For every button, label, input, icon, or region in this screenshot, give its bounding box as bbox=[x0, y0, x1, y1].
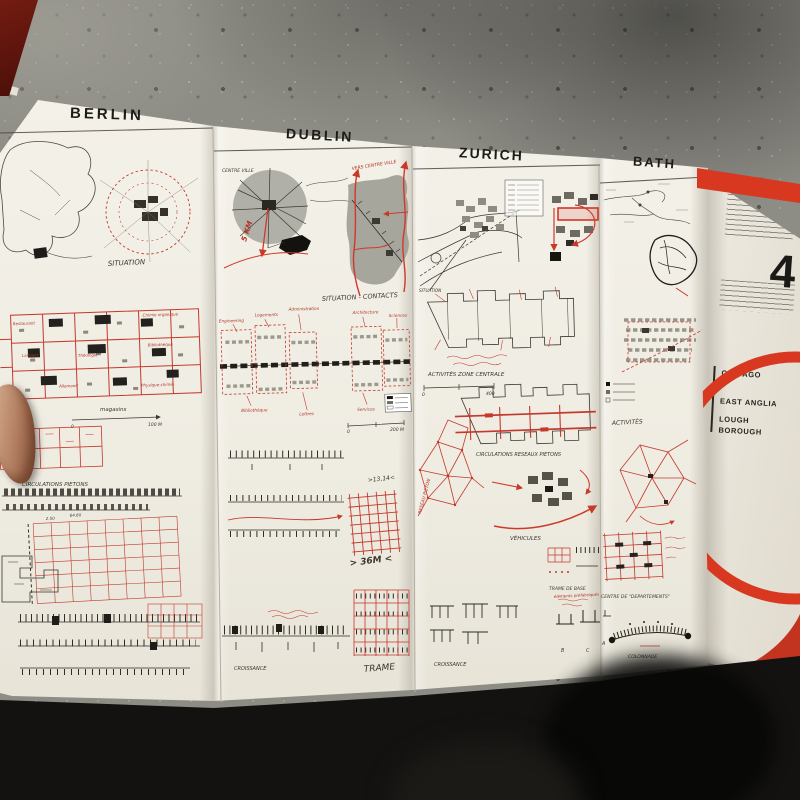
red-top-band bbox=[697, 168, 800, 203]
dublin-masterplan: Engineering Logements Administration Arc… bbox=[218, 304, 411, 419]
bath-city-blob-map bbox=[650, 235, 697, 296]
zurich-circulations-caption: CIRCULATIONS RESEAUX PIETONS bbox=[476, 452, 562, 458]
berlin-scale-bar: 0 100 M bbox=[71, 417, 162, 430]
berlin-campus-grid-plan: Restaurant Chimie organique Langues Théo… bbox=[0, 309, 201, 400]
dublin-label-logements: Logements bbox=[255, 312, 279, 318]
zurich-letter-c: C bbox=[586, 648, 590, 654]
zurich-map-legend bbox=[505, 180, 543, 216]
berlin-label-physique: Physique-chimie bbox=[141, 382, 174, 388]
zurich-prefab-caption: éléments préfabriqués bbox=[554, 592, 599, 599]
berlin-dim-a: 2.50 bbox=[46, 516, 56, 521]
berlin-black-plan-rows bbox=[2, 492, 182, 510]
berlin-growth-section-rows bbox=[18, 604, 202, 672]
zurich-base-grid-diagrams bbox=[548, 548, 600, 573]
bath-legend bbox=[606, 382, 635, 402]
zurich-meander-plan bbox=[454, 382, 597, 447]
dublin-city-circle-map bbox=[232, 168, 352, 255]
panel-title-berlin: BERLIN bbox=[70, 105, 144, 125]
dublin-label-bibliotheque: Bibliothèque bbox=[241, 407, 268, 413]
berlin-dim-b: 64.60 bbox=[70, 512, 82, 518]
berlin-situation-caption: SITUATION bbox=[108, 258, 146, 268]
zurich-vehicules-caption: VÉHICULES bbox=[510, 534, 541, 542]
berlin-label-langues: Langues bbox=[22, 352, 39, 358]
dublin-vers-centre-label: VERS CENTRE VILLE bbox=[351, 159, 397, 172]
dublin-grid-top-label: >13,14< bbox=[367, 474, 395, 484]
berlin-city-map bbox=[0, 142, 95, 259]
zurich-growth-sections bbox=[430, 604, 518, 644]
dublin-section-comb-1 bbox=[228, 454, 344, 470]
right-page-red-graphics bbox=[674, 168, 800, 692]
zurich-trame-caption: TRAME DE BASE bbox=[549, 586, 586, 592]
berlin-circulations-caption: CIRCULATIONS PIETONS bbox=[22, 482, 88, 488]
bath-situation-sketch bbox=[604, 184, 690, 224]
dublin-trame-caption: TRAME bbox=[363, 662, 395, 675]
berlin-label-restaurant: Restaurant bbox=[13, 320, 36, 326]
dublin-label-engineering: Engineering bbox=[219, 318, 245, 324]
bath-panel-diagrams: ACTIVITÉS bbox=[601, 184, 702, 660]
panel-title-bath: BATH bbox=[633, 154, 677, 172]
berlin-label-allemand: Allemand bbox=[58, 383, 78, 389]
zurich-vehicles-diagram bbox=[492, 470, 596, 529]
zurich-panel-diagrams: SITUATION bbox=[417, 180, 611, 668]
berlin-campus-situation bbox=[100, 160, 198, 262]
bath-centre-caption: CENTRE DE "DEPARTEMENTS" bbox=[601, 594, 670, 600]
zurich-croissance-caption: CROISSANCE bbox=[434, 662, 467, 668]
berlin-magasins-caption: magasins bbox=[100, 407, 126, 413]
dublin-scale-end: 200 M bbox=[390, 427, 404, 433]
dublin-situation-caption: SITUATION - CONTACTS bbox=[322, 291, 398, 303]
zurich-scale-zero: 0 bbox=[422, 392, 425, 398]
dublin-scale-bar: 0 200 M bbox=[347, 420, 404, 435]
red-circle bbox=[674, 357, 800, 599]
berlin-scale-end: 100 M bbox=[148, 422, 162, 428]
photo-of-foldout-plate: 4 CHICAGO EAST ANGLIA LOUGH BOROUGH bbox=[0, 0, 800, 800]
zurich-activites-caption: ACTIVITÉS ZONE CENTRALE bbox=[427, 370, 505, 378]
bath-colonnade-section bbox=[609, 621, 691, 646]
zurich-scale-bar: 0 400 bbox=[422, 383, 495, 398]
dublin-panel-diagrams: CENTRE VILLE 5 KM bbox=[218, 159, 411, 675]
dublin-label-administration: Administration bbox=[287, 306, 319, 312]
zurich-activities-map bbox=[550, 192, 598, 261]
dublin-label-sciences: Sciences bbox=[389, 313, 408, 319]
berlin-panel-diagrams: SITUATION bbox=[0, 142, 202, 673]
dublin-section-comb-2 bbox=[228, 498, 344, 534]
panel-title-zurich: ZURICH bbox=[459, 144, 525, 163]
bath-activites-caption: ACTIVITÉS bbox=[611, 417, 643, 427]
zurich-pedestrian-web bbox=[418, 420, 484, 516]
dublin-scale-zero: 0 bbox=[347, 429, 350, 435]
dublin-label-services: Services bbox=[357, 406, 376, 411]
berlin-label-chimie: Chimie organique bbox=[143, 311, 179, 317]
berlin-label-theologie: Théologie bbox=[78, 352, 98, 358]
berlin-label-bibliotheque: Bibliothèque bbox=[148, 342, 174, 348]
dublin-grid-bottom-label: > 36M < bbox=[349, 554, 393, 569]
dublin-legend bbox=[385, 394, 411, 413]
dublin-croissance-caption: CROISSANCE bbox=[234, 666, 267, 672]
berlin-red-mesh-grid: 2.50 64.60 bbox=[28, 507, 181, 604]
dublin-centre-ville-label: CENTRE VILLE bbox=[222, 168, 254, 174]
zurich-letter-b: B bbox=[561, 648, 564, 654]
zurich-central-zone-plan bbox=[427, 286, 575, 366]
bath-departments-grid bbox=[603, 529, 687, 581]
dublin-growth-section bbox=[222, 611, 350, 653]
dublin-label-lettres: Lettres bbox=[299, 411, 315, 416]
zurich-prefab-tables bbox=[556, 599, 611, 624]
dublin-area-map bbox=[347, 162, 409, 296]
bath-pedestrian-web bbox=[620, 440, 696, 524]
dublin-trame-diagram bbox=[354, 590, 409, 656]
zurich-situation-caption: SITUATION bbox=[419, 288, 442, 293]
zurich-letter-a: A bbox=[601, 641, 605, 647]
dublin-label-architecture: Architecture bbox=[352, 309, 379, 315]
dublin-trame-grid-36m bbox=[347, 490, 401, 556]
bath-activities-cluster bbox=[622, 320, 702, 372]
